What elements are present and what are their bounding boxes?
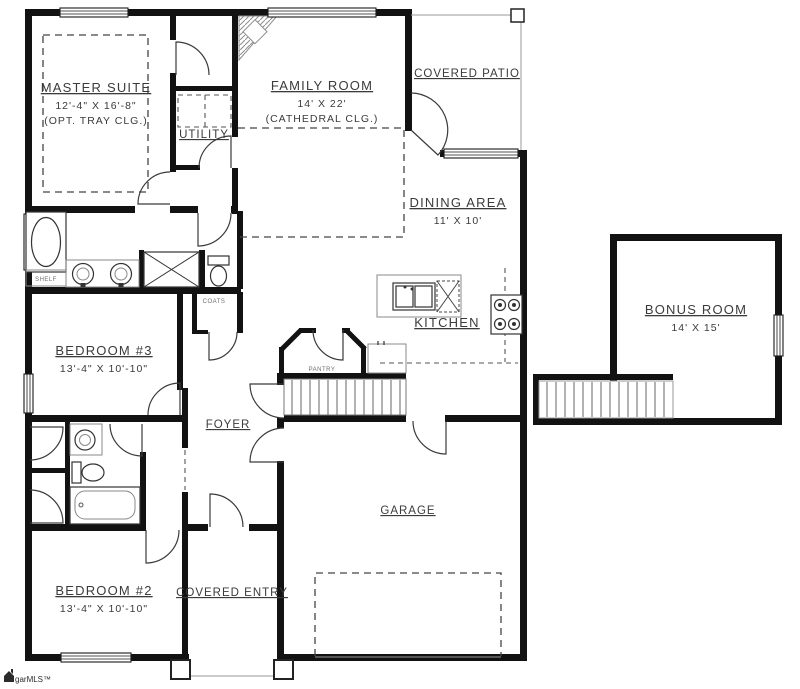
tray-ceiling-dashed — [43, 35, 148, 192]
kitchen-sink — [393, 283, 435, 310]
label-shelf: SHELF — [35, 277, 57, 283]
label-bonus-room-dims: 14' X 15' — [671, 322, 720, 334]
stairs-bonus — [539, 381, 673, 418]
door-arc-closet-1 — [30, 427, 63, 460]
window — [61, 653, 131, 662]
shower — [144, 252, 199, 287]
label-family-room-dims: 14' X 22' — [297, 98, 346, 110]
door-arc-pantry — [313, 330, 343, 360]
label-covered-patio: COVERED PATIO — [414, 68, 520, 80]
watermark: garMLS™ — [4, 669, 51, 684]
family-room-opening-dashed — [238, 128, 404, 237]
label-dining-area: DINING AREA — [410, 195, 507, 210]
door-arc-foyer-closet-upper — [250, 384, 284, 418]
label-covered-entry: COVERED ENTRY — [176, 587, 288, 599]
garden-tub — [26, 212, 66, 272]
walls — [25, 9, 782, 661]
patio-post — [511, 9, 524, 22]
entry-post-left — [171, 660, 190, 679]
tub-bath2 — [70, 487, 140, 524]
door-arc-coats — [209, 332, 237, 360]
label-family-room-note: (CATHEDRAL CLG.) — [266, 113, 379, 125]
stairs-main — [284, 379, 406, 415]
label-bedroom-3-dims: 13'-4" X 10'-10" — [60, 363, 148, 375]
window — [268, 8, 376, 17]
floor-plan: MASTER SUITE 12'-4" X 16'-8" (OPT. TRAY … — [0, 0, 800, 689]
label-master-suite-note: (OPT. TRAY CLG.) — [44, 115, 148, 127]
window — [774, 315, 783, 356]
label-family-room: FAMILY ROOM — [271, 78, 373, 93]
label-garage: GARAGE — [380, 505, 435, 517]
door-arc-bedroom-2 — [146, 530, 179, 563]
floor-plan-page: MASTER SUITE 12'-4" X 16'-8" (OPT. TRAY … — [0, 0, 800, 689]
labels: MASTER SUITE 12'-4" X 16'-8" (OPT. TRAY … — [35, 68, 747, 615]
door-arc-bedroom-3 — [148, 383, 180, 415]
toilet-master — [208, 256, 229, 286]
garage-door-dashed — [315, 573, 501, 656]
door-arc-garage-entry — [413, 421, 446, 454]
label-kitchen: KITCHEN — [414, 315, 479, 330]
door-arc-master-closet — [176, 42, 209, 75]
label-dining-area-dims: 11' X 10' — [434, 215, 482, 227]
label-master-suite: MASTER SUITE — [41, 80, 151, 95]
label-pantry: PANTRY — [309, 367, 336, 373]
range — [491, 295, 522, 334]
door-arc-master-bath — [198, 213, 231, 246]
window — [24, 374, 33, 413]
windows — [24, 8, 783, 662]
door-arc-foyer-closet-lower — [250, 428, 284, 462]
window — [60, 8, 128, 17]
entry-post-right — [274, 660, 293, 679]
house-icon — [4, 669, 14, 682]
fireplace — [239, 16, 277, 60]
label-bedroom-2-dims: 13'-4" X 10'-10" — [60, 603, 148, 615]
dishwasher — [437, 281, 459, 312]
refrigerator — [368, 341, 406, 373]
label-foyer: FOYER — [206, 419, 251, 431]
door-arc-closet-2 — [30, 490, 63, 523]
watermark-text: garMLS™ — [15, 675, 51, 684]
toilet-bath2 — [72, 462, 104, 483]
door-arc-front-entry — [210, 494, 243, 527]
label-utility: UTILITY — [179, 129, 229, 141]
door-arc-patio — [411, 93, 448, 155]
label-master-suite-dims: 12'-4" X 16'-8" — [55, 100, 136, 112]
label-bedroom-2: BEDROOM #2 — [55, 583, 152, 598]
double-vanity — [66, 260, 139, 287]
door-arc-master-suite — [138, 172, 170, 204]
label-bonus-room: BONUS ROOM — [645, 302, 747, 317]
vanity-bath2 — [70, 424, 102, 455]
door-arc-bath-2 — [110, 424, 142, 456]
label-coats: COATS — [203, 299, 226, 305]
label-bedroom-3: BEDROOM #3 — [55, 343, 152, 358]
covered-entry-outline — [171, 660, 293, 679]
window — [444, 149, 518, 158]
